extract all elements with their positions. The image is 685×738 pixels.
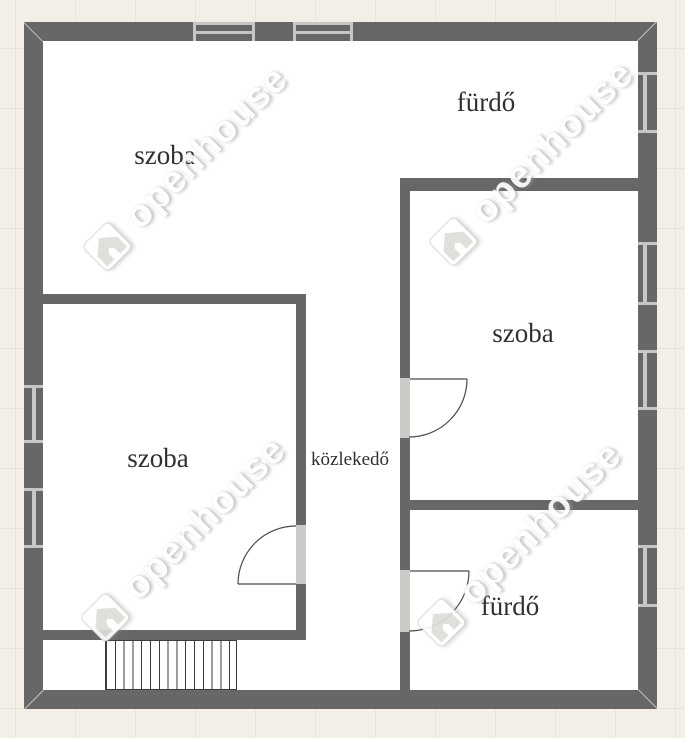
door-opening-room-mid-right [400,378,410,438]
wall-room-bl-bottom [43,630,306,640]
window-right-2 [638,242,657,305]
room-label-bottom-left: szoba [127,444,188,474]
window-top-2 [293,22,353,41]
window-right-3 [638,350,657,410]
wall-bath-br-top [400,500,638,510]
window-left-2 [24,488,43,548]
room-label-top-left: szoba [134,141,195,171]
room-label-bath-bottom: fürdő [481,592,539,622]
room-label-corridor: közlekedő [311,450,389,471]
wall-bath-tr-bottom [400,178,638,191]
door-opening-bath-br [400,570,410,632]
floorplan-canvas: szoba fürdő szoba szoba közlekedő fürdő … [0,0,685,738]
window-top-1 [193,22,255,41]
wall-room-bl-right [296,294,306,640]
window-left-1 [24,385,43,443]
window-right-1 [638,72,657,133]
wall-room-bl-top [43,294,306,304]
room-label-bath-top: fürdő [457,88,515,118]
door-opening-room-bl [296,525,306,584]
window-right-4 [638,545,657,607]
room-label-mid-right: szoba [492,319,553,349]
floor-area [43,41,638,690]
stairs [105,640,237,690]
